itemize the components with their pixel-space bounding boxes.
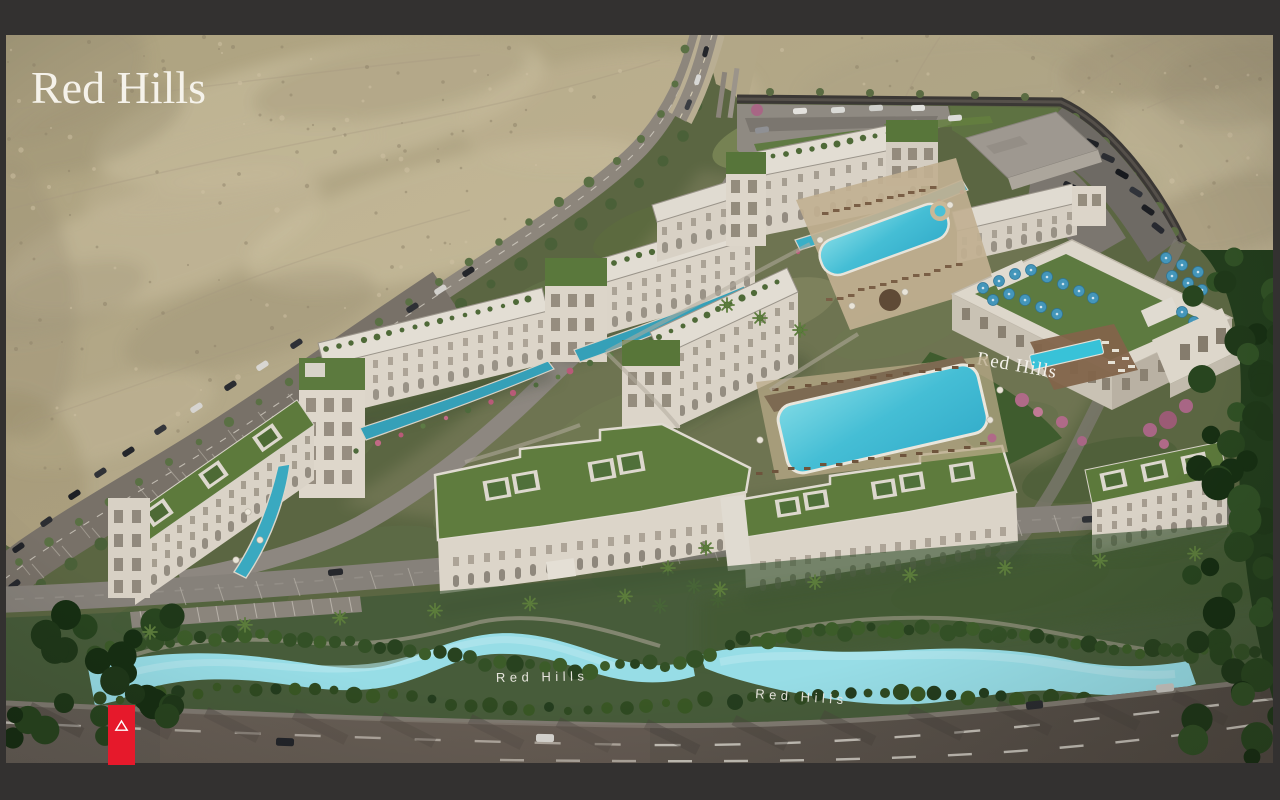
svg-text:Red Hills: Red Hills: [31, 62, 206, 113]
